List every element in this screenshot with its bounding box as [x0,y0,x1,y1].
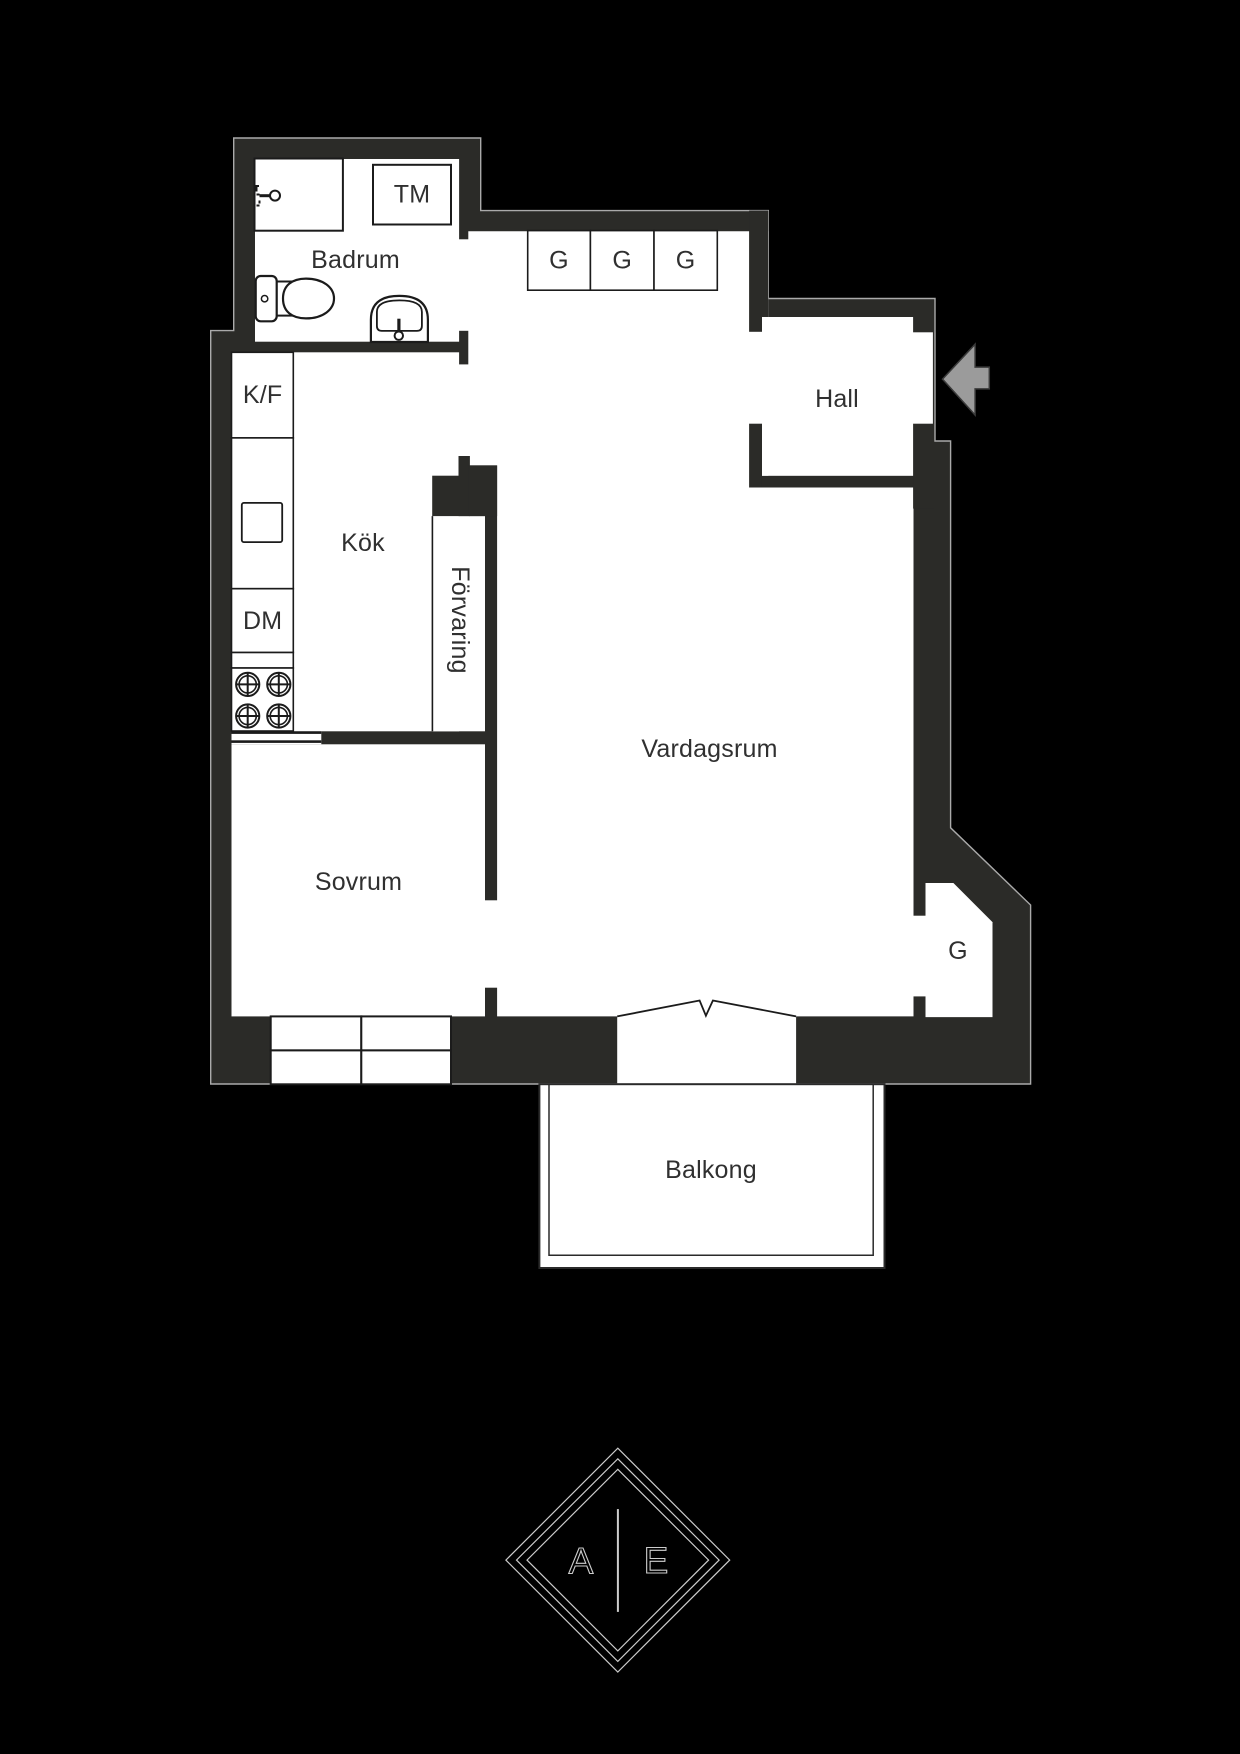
svg-text:G: G [676,247,696,275]
svg-text:DM: DM [243,607,282,635]
svg-text:G: G [549,247,569,275]
svg-text:Vardagsrum: Vardagsrum [641,735,777,763]
svg-text:TM: TM [394,181,431,209]
svg-text:Hall: Hall [815,385,859,413]
svg-text:K/F: K/F [243,381,283,409]
svg-text:A: A [569,1541,594,1582]
svg-text:Sovrum: Sovrum [315,868,402,896]
svg-text:Badrum: Badrum [311,246,400,274]
svg-text:Kök: Kök [341,529,385,557]
svg-text:G: G [948,937,968,965]
svg-text:Förvaring: Förvaring [446,566,474,673]
svg-text:G: G [612,247,632,275]
svg-text:Balkong: Balkong [665,1156,757,1184]
svg-text:E: E [644,1540,669,1581]
